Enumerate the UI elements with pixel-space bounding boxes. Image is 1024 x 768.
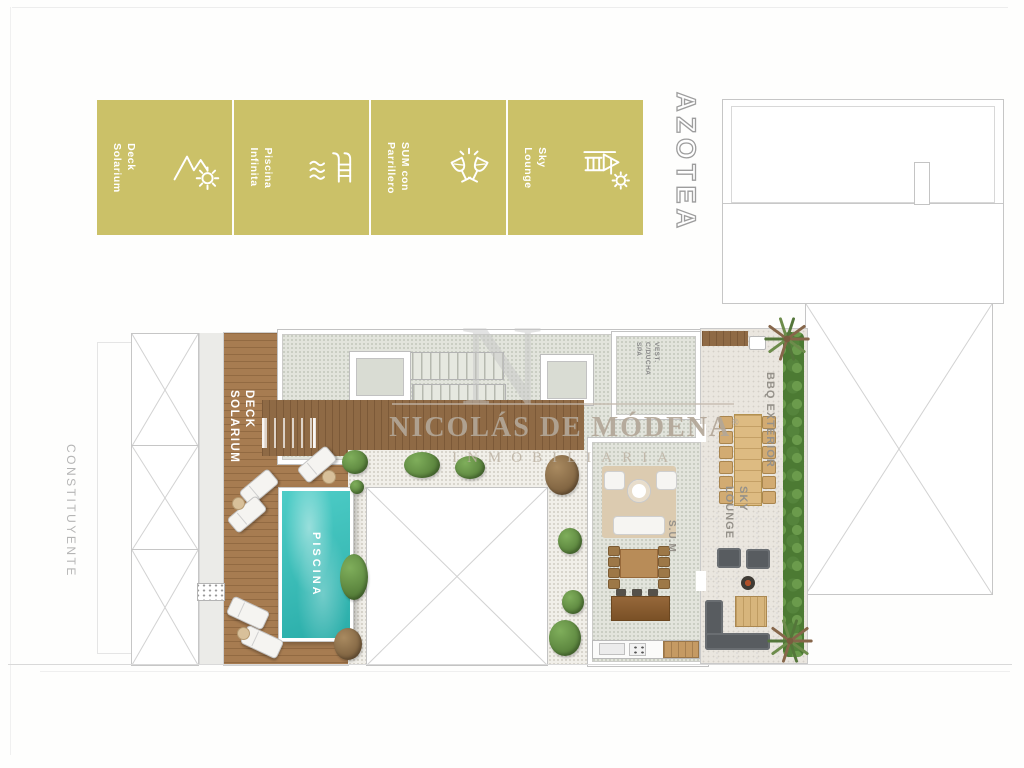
deck-solarium-label: DECKSOLARIUM: [226, 390, 256, 463]
plant: [562, 590, 584, 614]
neighbor-roof-x-right: [805, 303, 993, 595]
stool: [632, 589, 642, 596]
x-brace-icon: [367, 488, 547, 665]
plant: [334, 628, 362, 660]
terrace-chair: [762, 476, 776, 489]
dining-chair: [608, 568, 620, 578]
fire-pit: [741, 576, 755, 590]
elevator-shaft-left: [350, 352, 410, 402]
plan-boundary-line: [8, 664, 1012, 665]
elevator-shaft-right: [541, 355, 593, 405]
pool-label: PISCINA: [310, 532, 322, 598]
lounge-armchair: [717, 548, 741, 568]
street-label: CONSTITUYENTE: [64, 444, 78, 578]
sum-label: S.U.M: [666, 520, 677, 553]
terrace-wood-strip: [702, 331, 748, 346]
pool-ladder-icon: [307, 143, 357, 193]
dining-chair: [608, 546, 620, 556]
badge-piscina-infinita: PiscinaInfinita: [234, 100, 369, 235]
x-brace-icon: [132, 334, 198, 446]
side-walkway: [199, 333, 226, 664]
badge-label: SkyLounge: [521, 147, 549, 189]
plan-boundary-line-faint: [40, 671, 1010, 672]
bar-bench: [611, 596, 670, 621]
skylight-x-3: [131, 549, 199, 666]
x-brace-icon: [132, 550, 198, 665]
badge-deck-solarium: DeckSolarium: [97, 100, 232, 235]
side-table: [322, 470, 336, 484]
bbq-exterior-label: BBQ EXTERIOR: [764, 372, 776, 468]
x-brace-icon: [132, 446, 198, 550]
dining-chair: [658, 568, 670, 578]
dining-table: [620, 549, 658, 578]
rooftop-floorplan-flyer: DeckSolarium PiscinaInfinita SUM conParr…: [0, 0, 1024, 768]
plant: [350, 480, 364, 494]
elevator-cab: [357, 359, 403, 395]
chimney-outline: [914, 162, 930, 205]
lounge-armchair: [746, 549, 770, 569]
dining-chair: [608, 557, 620, 567]
dining-chair: [658, 557, 670, 567]
page-frame-top: [12, 7, 1008, 8]
l-sofa-seat: [705, 633, 770, 650]
dining-chair: [608, 579, 620, 589]
lot-boundary-left: [97, 342, 133, 654]
plant: [549, 620, 581, 656]
pergola-sun-icon: [581, 143, 631, 193]
deck-stairs: [262, 418, 316, 448]
neighbor-roof-divider: [723, 203, 1003, 204]
terrace-chair: [762, 491, 776, 504]
door-threshold: [696, 571, 706, 591]
hedge: [783, 332, 804, 657]
badge-sky-lounge: SkyLounge: [508, 100, 643, 235]
registered-mark: ®: [731, 418, 740, 429]
deck-signage-plate: [197, 583, 225, 601]
courtyard-void-x: [366, 487, 548, 666]
kitchen-stove: [629, 643, 646, 656]
plant: [340, 554, 368, 600]
kitchen-cabinet: [663, 641, 699, 658]
neighbor-roof-outline: [722, 99, 1004, 304]
skylight-x-2: [131, 445, 199, 551]
stool: [616, 589, 626, 596]
elevator-cab: [548, 362, 586, 398]
watermark-subtitle: INMOBILIARIA: [380, 450, 750, 467]
stool: [648, 589, 658, 596]
neighbor-roof-inner: [731, 106, 995, 203]
mountains-sun-icon: [170, 143, 220, 193]
sofa: [613, 516, 665, 535]
side-table: [237, 627, 250, 640]
brand-name: NICOLÁS DE MÓDENA: [389, 412, 731, 443]
badge-label: SUM conParrillero: [384, 141, 412, 193]
palm-tree-icon: [760, 312, 814, 366]
armchair: [604, 471, 625, 490]
plant: [558, 528, 582, 554]
floor-title: AZOTEA: [670, 92, 701, 233]
badge-label: DeckSolarium: [110, 143, 138, 193]
watermark-monogram: N: [460, 308, 543, 423]
armchair: [656, 471, 677, 490]
plant: [342, 450, 368, 474]
toasting-glasses-icon: [444, 143, 494, 193]
badge-label: PiscinaInfinita: [247, 147, 275, 188]
round-table: [627, 479, 651, 503]
watermark-name: NICOLÁS DE MÓDENA®: [380, 412, 750, 444]
x-brace-icon: [806, 304, 992, 594]
page-frame-left: [10, 7, 11, 755]
skylight-x-1: [131, 333, 199, 447]
dining-chair: [658, 579, 670, 589]
kitchen-sink: [599, 643, 625, 655]
badge-sum-parrillero: SUM conParrillero: [371, 100, 506, 235]
watermark-rule: [392, 403, 734, 405]
sky-lounge-label: SKYLOUNGE: [722, 486, 750, 539]
palm-tree-icon: [763, 614, 817, 668]
side-table: [232, 497, 245, 510]
vestuary-label: VEST.C/DUCHASPA: [634, 342, 661, 375]
